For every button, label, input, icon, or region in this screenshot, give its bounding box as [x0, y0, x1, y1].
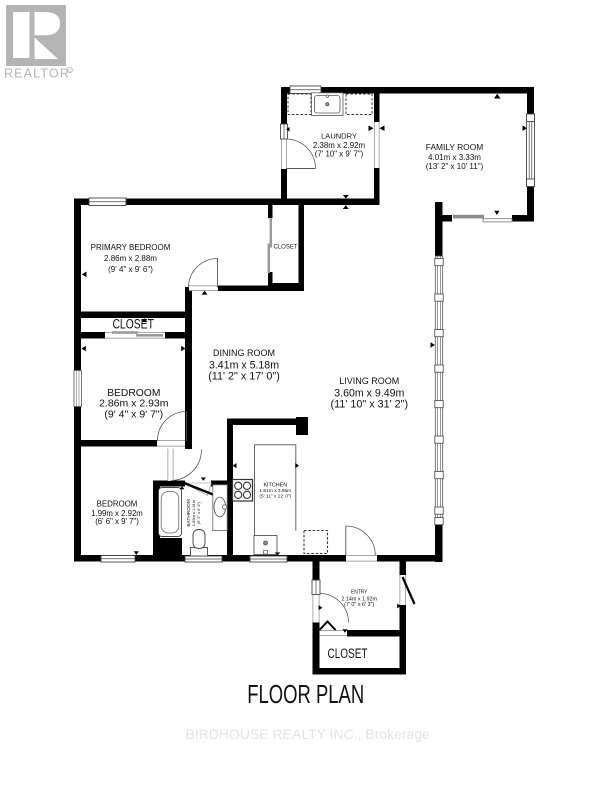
svg-text:KITCHEN: KITCHEN — [263, 483, 287, 489]
svg-text:(7' 10" x 9' 7"): (7' 10" x 9' 7") — [315, 150, 364, 159]
svg-text:FAMILY ROOM: FAMILY ROOM — [426, 142, 483, 152]
svg-text:(11' 2" x 17' 0"): (11' 2" x 17' 0") — [208, 370, 280, 382]
svg-text:(7' 0" x 6' 3"): (7' 0" x 6' 3") — [344, 602, 374, 608]
svg-text:(13' 2" x 10' 11"): (13' 2" x 10' 11") — [426, 162, 484, 171]
svg-text:DINING ROOM: DINING ROOM — [213, 348, 275, 358]
svg-text:ENTRY: ENTRY — [351, 590, 368, 596]
svg-text:(6' 2" x 6' 3"): (6' 2" x 6' 3") — [196, 501, 201, 524]
svg-text:(6' 6" x 9' 7"): (6' 6" x 9' 7") — [95, 517, 139, 526]
svg-text:BIRDHOUSE REALTY INC., Brokera: BIRDHOUSE REALTY INC., Brokerage — [185, 726, 430, 742]
svg-text:CLOSET: CLOSET — [112, 317, 154, 332]
svg-text:LIVING ROOM: LIVING ROOM — [339, 376, 399, 386]
svg-text:REALTOR: REALTOR — [4, 67, 70, 81]
svg-text:2.86m x 2.88m: 2.86m x 2.88m — [104, 254, 157, 263]
svg-text:CLOSET: CLOSET — [328, 646, 368, 661]
svg-text:(9' 4" x 9' 7"): (9' 4" x 9' 7") — [104, 409, 163, 421]
svg-text:1.81m x 3.65m: 1.81m x 3.65m — [259, 488, 291, 494]
svg-text:2.38m x 2.92m: 2.38m x 2.92m — [313, 141, 366, 150]
svg-text:4.01m x 3.33m: 4.01m x 3.33m — [428, 153, 481, 162]
svg-text:FLOOR PLAN: FLOOR PLAN — [247, 681, 364, 709]
svg-text:(11' 10" x 31' 2"): (11' 10" x 31' 2") — [330, 398, 408, 410]
svg-text:R: R — [68, 69, 71, 73]
svg-text:(5' 11" x 12' 0"): (5' 11" x 12' 0") — [259, 494, 291, 500]
svg-text:BEDROOM: BEDROOM — [97, 499, 138, 508]
svg-text:2.86m x 2.93m: 2.86m x 2.93m — [99, 397, 169, 409]
svg-text:CLOSET: CLOSET — [273, 245, 297, 251]
svg-text:LAUNDRY: LAUNDRY — [321, 132, 357, 141]
svg-text:(9' 4" x 9' 6"): (9' 4" x 9' 6") — [108, 265, 153, 274]
svg-text:PRIMARY BEDROOM: PRIMARY BEDROOM — [91, 243, 171, 252]
